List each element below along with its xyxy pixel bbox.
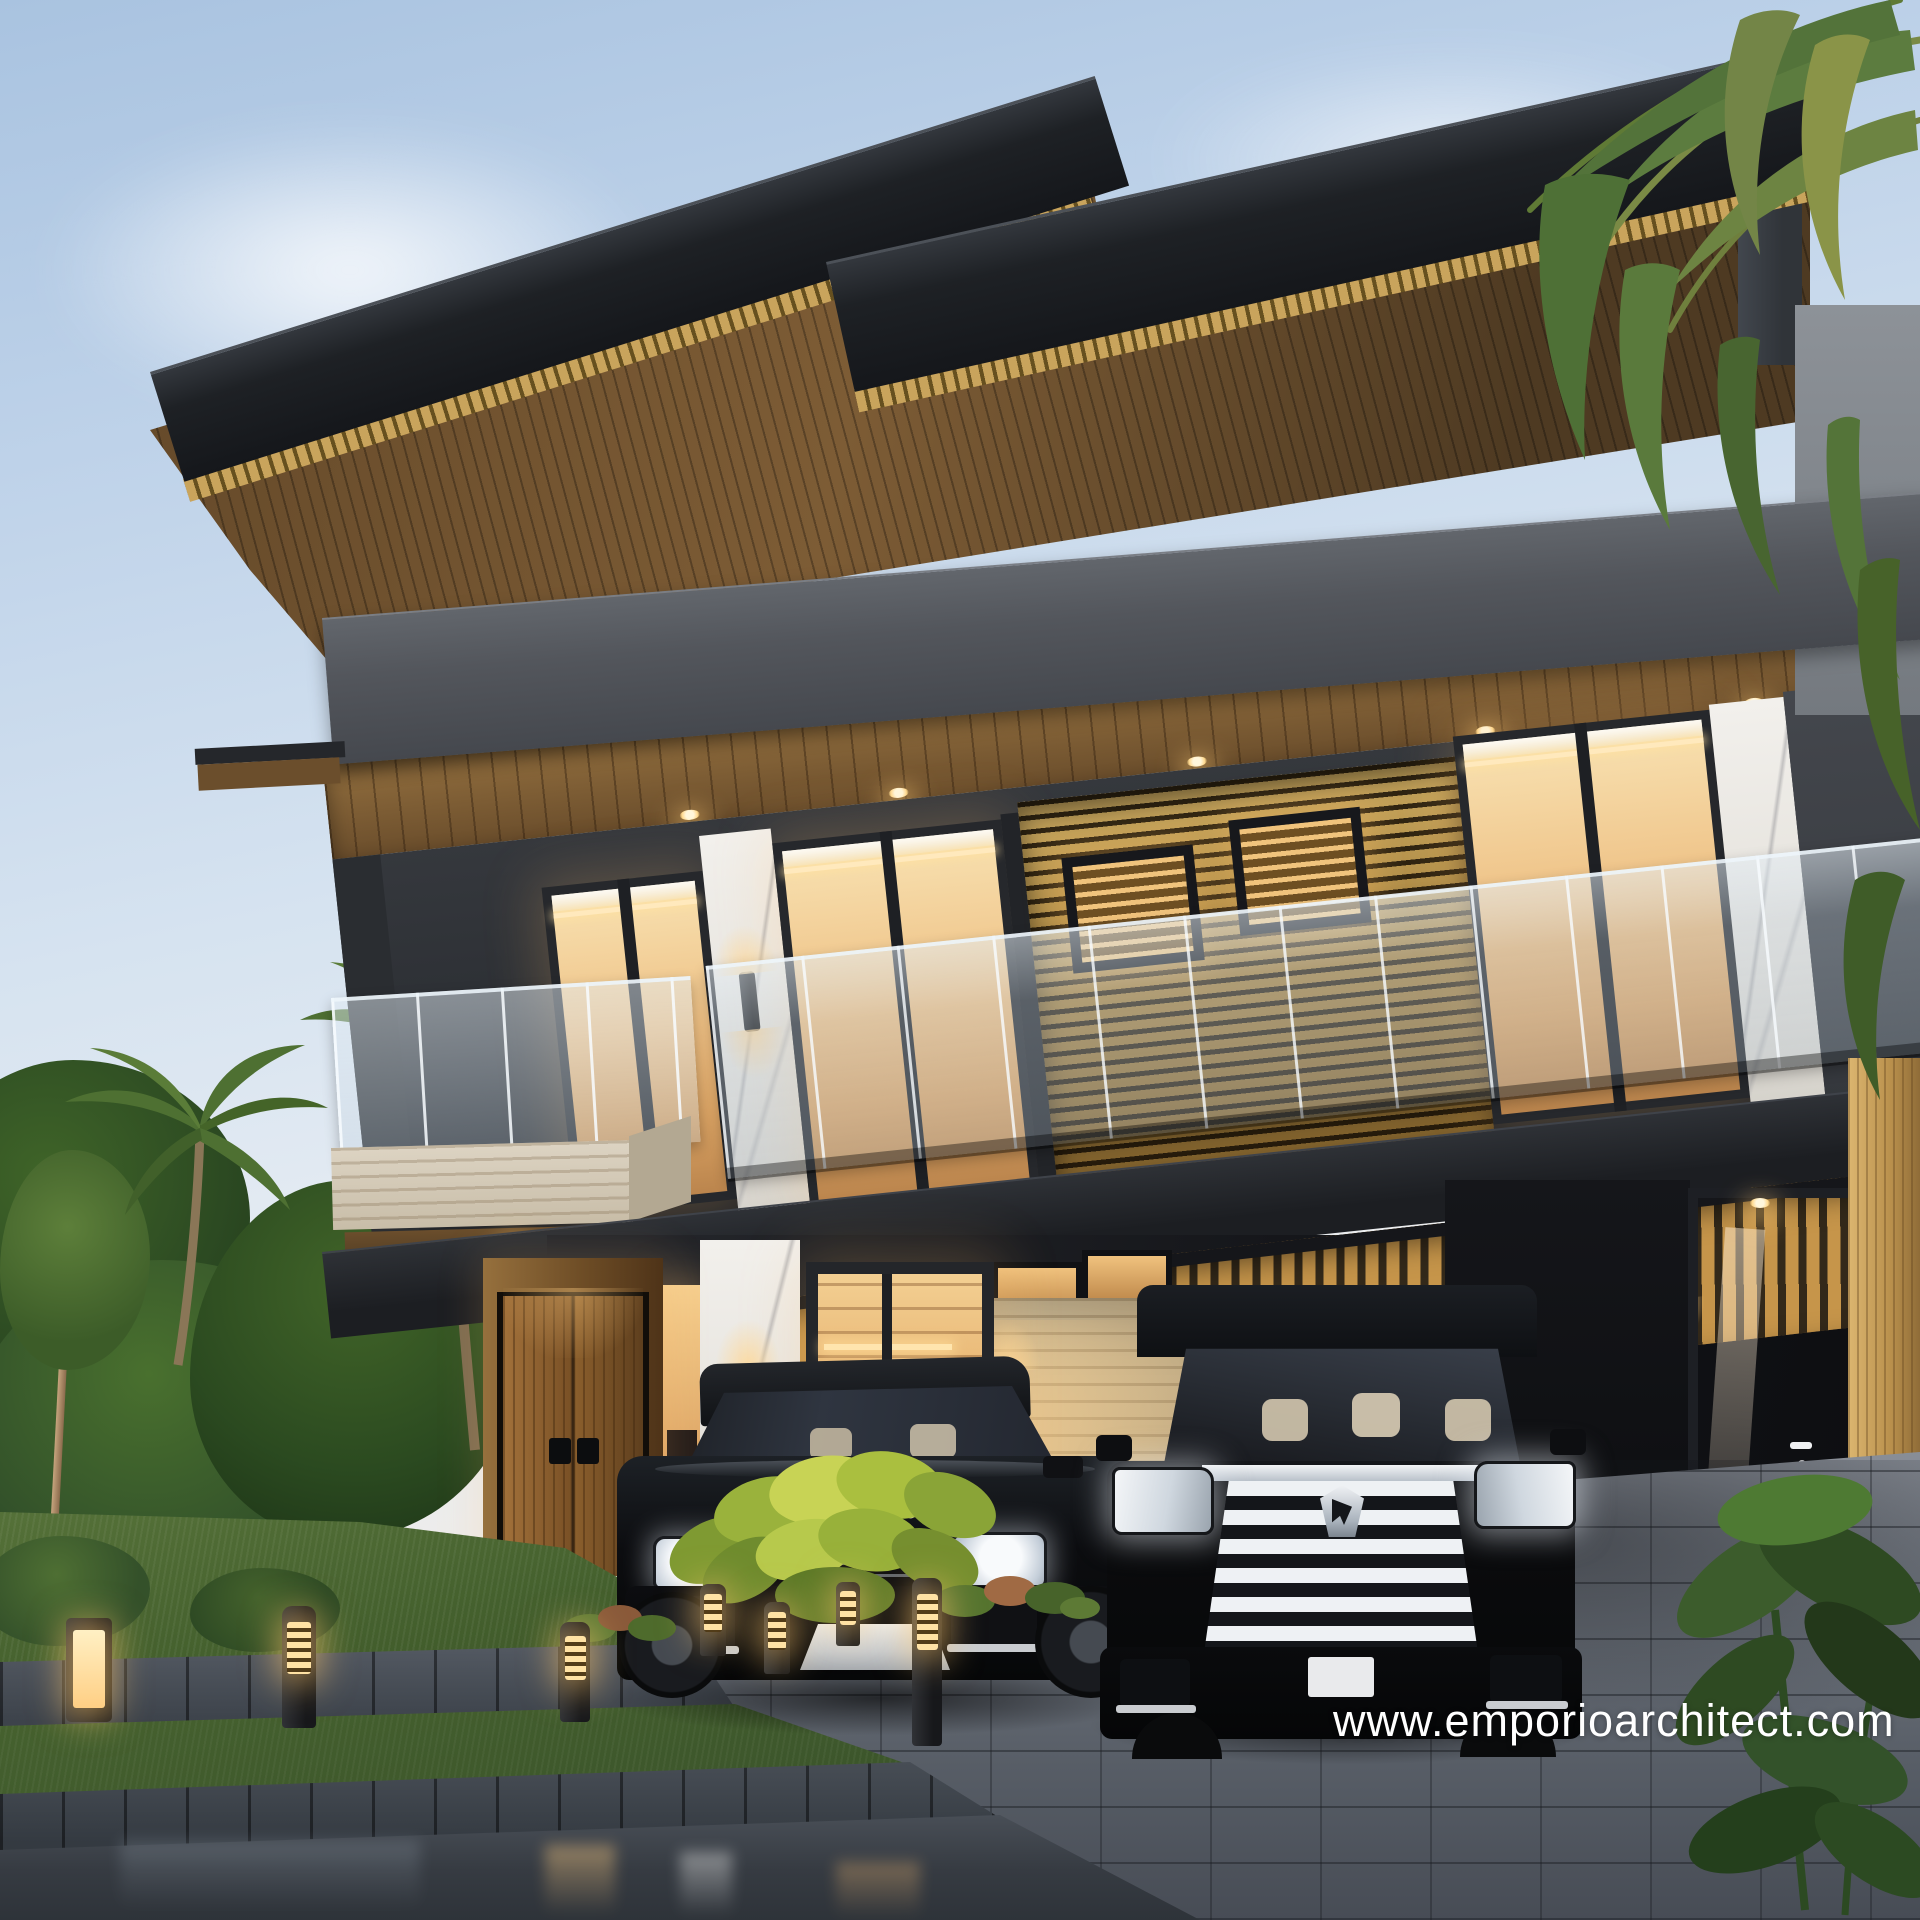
bollard-light-box	[66, 1618, 112, 1722]
suv-mirror	[1043, 1456, 1083, 1478]
side-door-downlight	[1750, 1198, 1770, 1208]
tropical-plant-right	[1655, 1330, 1920, 1920]
mpv-license-plate	[1308, 1657, 1374, 1697]
accent-plants	[930, 1556, 1100, 1626]
architectural-render-canvas: RANGE ROVER	[0, 0, 1920, 1920]
mpv-alphard	[1092, 1285, 1590, 1765]
bollard-lamp	[917, 1594, 938, 1650]
suv-fog-blade-right	[947, 1644, 1041, 1652]
small-balcony-travertine-box	[331, 1140, 633, 1230]
bollard-lamp	[73, 1630, 105, 1708]
door-handle-left	[549, 1438, 571, 1464]
mpv-fog-blade-left	[1116, 1705, 1196, 1713]
bollard-light	[836, 1582, 860, 1646]
palm-tree-far-left	[50, 1010, 330, 1370]
bollard-lamp	[287, 1622, 311, 1674]
bollard-lamp	[768, 1612, 786, 1650]
mpv-fog-insert-left	[1120, 1659, 1190, 1707]
watermark-url: www.emporioarchitect.com	[1333, 1695, 1895, 1747]
mpv-seat	[1262, 1399, 1308, 1441]
bollard-light	[560, 1622, 590, 1722]
mpv-mirror	[1096, 1435, 1132, 1461]
mpv-headlight-right	[1474, 1461, 1576, 1529]
bollard-light	[282, 1606, 316, 1728]
mpv-emblem-glyph	[1332, 1499, 1352, 1525]
wet-reflection-white	[680, 1852, 732, 1916]
mpv-roof	[1137, 1285, 1537, 1357]
mpv-seat	[1445, 1399, 1491, 1441]
wet-reflection-sky	[120, 1840, 420, 1910]
bollard-lamp	[565, 1636, 586, 1680]
wet-reflection-warm	[545, 1845, 615, 1915]
mpv-windshield	[1147, 1341, 1537, 1471]
mpv-mirror	[1550, 1429, 1586, 1455]
mpv-headlight-left	[1112, 1467, 1214, 1535]
door-handle-right	[577, 1438, 599, 1464]
bollard-light	[700, 1584, 726, 1656]
bollard-lamp	[704, 1594, 722, 1632]
mpv-seat	[1352, 1393, 1400, 1437]
bollard-light-tall	[912, 1578, 942, 1746]
bollard-lamp	[840, 1591, 857, 1625]
palm-fronds-top-right	[1200, 0, 1920, 1120]
bollard-light	[764, 1602, 790, 1674]
mpv-chrome-strip	[1202, 1465, 1480, 1481]
wet-reflection-warm	[836, 1862, 920, 1918]
door-top-glow	[503, 1288, 643, 1358]
